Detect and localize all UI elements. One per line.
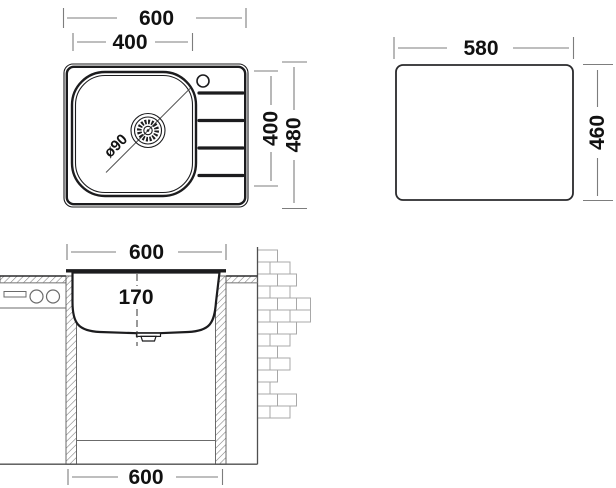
countertop-right: [226, 276, 258, 283]
dim-label-cutout-height: 460: [586, 115, 609, 150]
dim-label-cutout-width: 580: [463, 37, 498, 60]
dim-label-bowl-depth: 170: [118, 286, 153, 309]
dim-label-top-bowl-depth: 400: [260, 111, 283, 146]
countertop-left: [0, 276, 66, 283]
cabinet-post-right: [216, 276, 227, 464]
dim-label-top-bowl-width: 400: [112, 31, 147, 54]
dim-label-top-overall-depth: 480: [283, 117, 306, 152]
sink-technical-drawing: ø90 600 400 400: [0, 0, 616, 488]
dim-label-section-bottom-width: 600: [128, 466, 163, 488]
dim-label-top-overall-width: 600: [139, 7, 174, 30]
dim-label-section-top-width: 600: [129, 241, 164, 264]
